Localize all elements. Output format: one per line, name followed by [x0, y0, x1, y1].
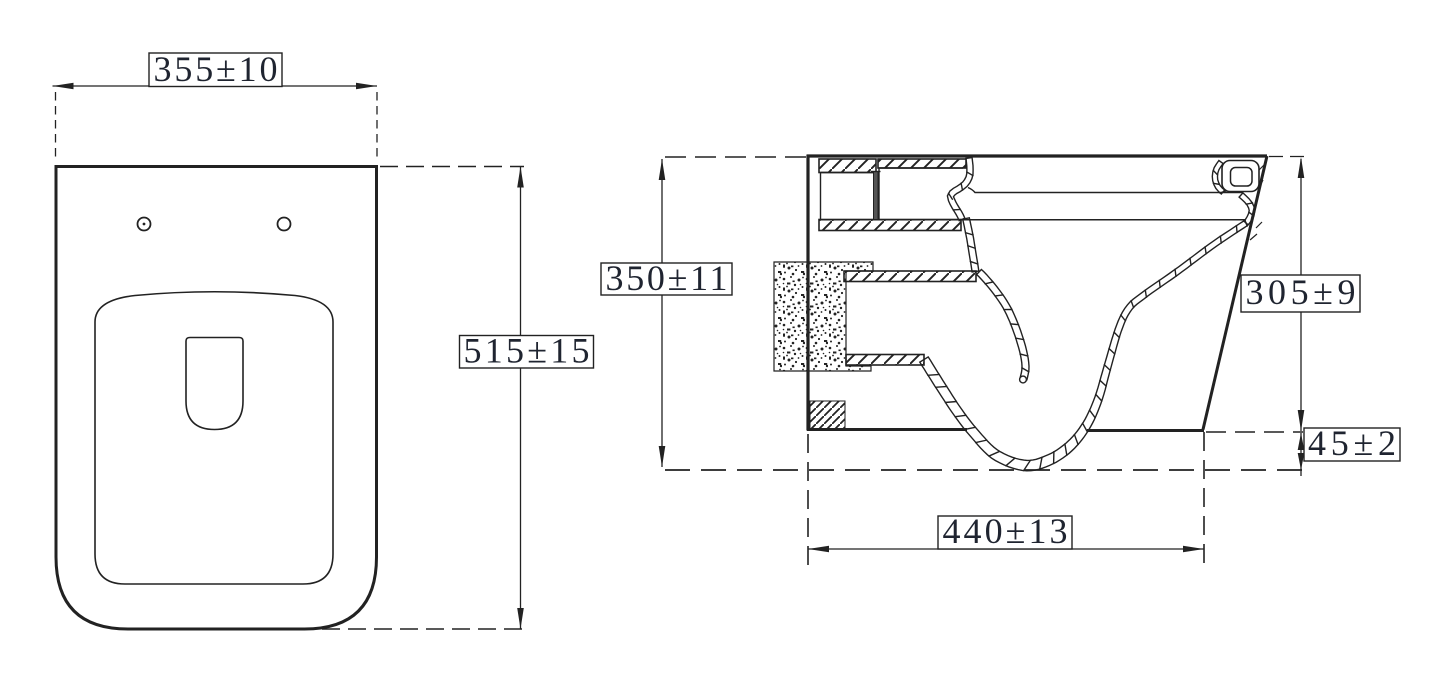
svg-text:305±9: 305±9 [1246, 272, 1356, 312]
